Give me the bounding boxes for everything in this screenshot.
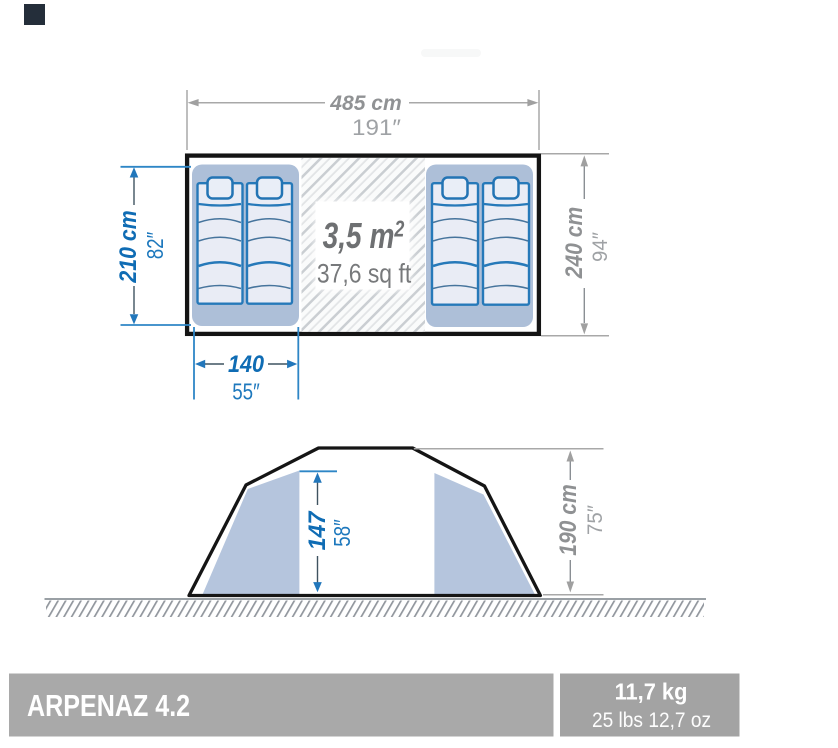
svg-text:240 cm: 240 cm: [561, 207, 588, 280]
svg-text:3,5 m2: 3,5 m2: [323, 216, 405, 256]
svg-text:75″: 75″: [584, 504, 608, 534]
svg-text:ARPENAZ 4.2: ARPENAZ 4.2: [27, 687, 190, 722]
svg-text:140: 140: [228, 350, 264, 377]
svg-text:147: 147: [305, 510, 331, 551]
svg-text:190 cm: 190 cm: [555, 484, 582, 556]
svg-text:191″: 191″: [352, 115, 401, 140]
svg-text:210 cm: 210 cm: [114, 210, 142, 283]
svg-text:94″: 94″: [589, 231, 613, 261]
svg-text:55″: 55″: [232, 379, 260, 406]
svg-text:82″: 82″: [142, 231, 169, 259]
svg-text:37,6 sq ft: 37,6 sq ft: [317, 259, 411, 289]
svg-text:11,7 kg: 11,7 kg: [615, 679, 688, 705]
svg-text:25 lbs 12,7 oz: 25 lbs 12,7 oz: [592, 709, 711, 732]
svg-text:58″: 58″: [329, 519, 356, 547]
svg-text:485 cm: 485 cm: [329, 91, 401, 115]
